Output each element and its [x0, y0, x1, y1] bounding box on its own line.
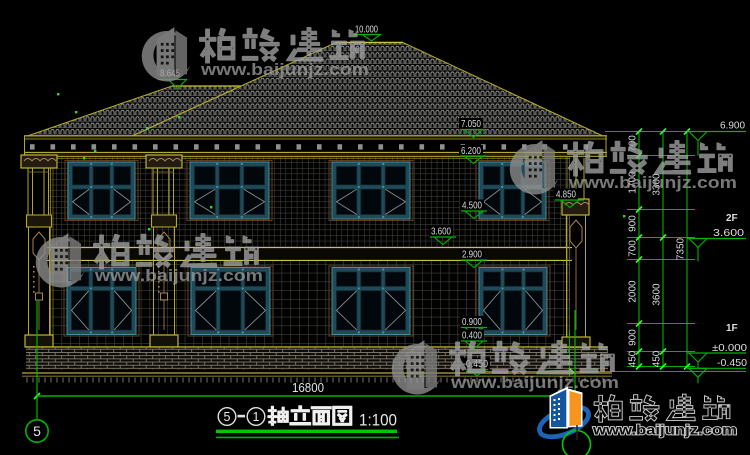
svg-text:6.200: 6.200	[461, 145, 481, 157]
svg-text:1: 1	[253, 410, 260, 424]
svg-text:3600: 3600	[652, 283, 663, 306]
svg-text:5: 5	[224, 410, 231, 424]
svg-text:3.600: 3.600	[713, 227, 744, 239]
svg-text:16800: 16800	[292, 381, 324, 395]
svg-text:700: 700	[628, 240, 639, 257]
svg-text:www.baijunjz.com: www.baijunjz.com	[568, 174, 737, 192]
svg-text:5: 5	[33, 423, 41, 439]
svg-text:7.050: 7.050	[461, 118, 481, 130]
svg-text:900: 900	[628, 329, 639, 346]
svg-text:0.400: 0.400	[462, 330, 482, 342]
svg-text:1:100: 1:100	[359, 411, 397, 430]
svg-text:900: 900	[628, 215, 639, 232]
svg-text:7350: 7350	[676, 237, 687, 260]
svg-text:10.000: 10.000	[355, 24, 378, 36]
svg-text:450: 450	[652, 350, 663, 367]
svg-text:www.baijunjz.com: www.baijunjz.com	[592, 423, 737, 438]
svg-text:4.500: 4.500	[462, 200, 482, 212]
svg-text:0.900: 0.900	[462, 316, 482, 328]
svg-text:www.baijunjz.com: www.baijunjz.com	[450, 374, 619, 392]
svg-text:2000: 2000	[628, 280, 639, 303]
svg-text:1F: 1F	[726, 323, 738, 334]
svg-text:2.900: 2.900	[462, 249, 482, 261]
svg-text:2F: 2F	[726, 213, 738, 224]
svg-text:450: 450	[628, 350, 639, 367]
svg-text:3.600: 3.600	[431, 226, 451, 238]
svg-text:www.baijunjz.com: www.baijunjz.com	[200, 61, 369, 79]
svg-text:-0.450: -0.450	[717, 357, 747, 369]
svg-text:www.baijunjz.com: www.baijunjz.com	[94, 267, 263, 285]
svg-text:±0.000: ±0.000	[712, 342, 747, 354]
svg-text:6.900: 6.900	[720, 120, 745, 132]
